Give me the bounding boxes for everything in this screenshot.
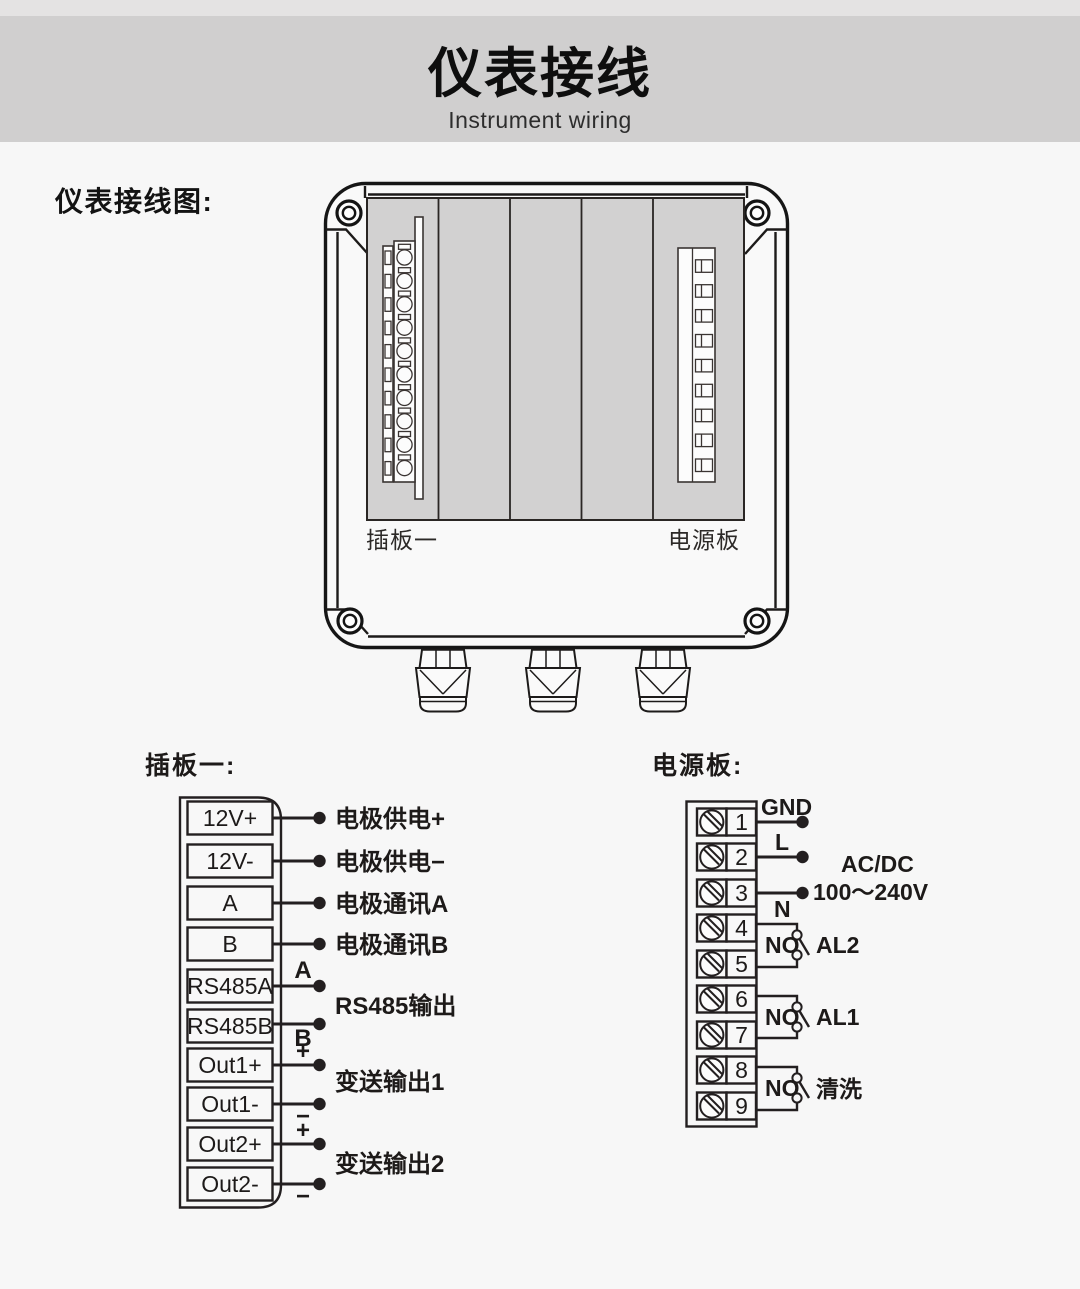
junction-dot [313,855,325,867]
corner-screw-icon [337,201,361,225]
relay-contact-al1: NO AL1 [756,996,860,1038]
wiring-diagram: 插板一 电源板 插板一: [0,0,1080,1289]
device-left-board-label: 插板一 [366,527,438,553]
junction-dot [313,812,325,824]
terminal-label: RS485A [187,973,273,999]
svg-text:4: 4 [735,915,748,941]
power-terminal-row: 1 [697,809,756,836]
power-terminal-row: 4 [697,915,756,942]
terminal-label: A [222,890,238,916]
relay-contact-al2: NO AL2 [756,924,859,967]
wire-label: 电极通讯B [335,932,448,959]
power-terminal-row: 7 [697,1022,756,1049]
corner-screw-icon [745,201,769,225]
corner-screw-icon [745,609,769,633]
board2-heading: 电源板: [652,752,743,780]
power-terminal-row: 5 [697,951,756,978]
minus-mark: − [296,1183,310,1210]
relay-contact-clean: NO 清洗 [756,1067,862,1110]
svg-text:1: 1 [735,809,748,835]
cable-gland-icon [416,650,470,712]
svg-text:3: 3 [735,880,748,906]
junction-dot [313,938,325,950]
board2-section: 电源板: 1 2 3 4 5 6 7 [652,752,929,1127]
terminal-label: Out1+ [198,1052,261,1078]
junction-dot [313,1098,325,1110]
terminal-label: Out2+ [198,1131,261,1157]
no-label: NO [765,932,800,958]
relay-label: AL1 [816,1004,860,1030]
plus-mark: + [296,1038,310,1065]
board1-heading: 插板一: [145,752,236,780]
no-label: NO [765,1075,800,1101]
junction-dot [313,897,325,909]
junction-dot [796,851,808,863]
wire-label: 变送输出1 [335,1068,444,1096]
svg-text:8: 8 [735,1057,748,1083]
board1-section: 插板一: 12V+ 12V- A B RS485A RS485B Out1+ O… [145,752,456,1210]
terminal-label: Out1- [201,1091,259,1117]
neutral-label: N [774,896,791,922]
power-terminal-row: 6 [697,986,756,1013]
power-terminal-row: 9 [697,1093,756,1120]
terminal-label: B [222,931,237,957]
terminal-label: 12V- [206,848,253,874]
junction-dot [313,1178,325,1190]
plus-mark: + [296,1117,310,1144]
corner-screw-icon [338,609,362,633]
page: 仪表接线 Instrument wiring 仪表接线图: [0,0,1080,1289]
junction-dot [313,1059,325,1071]
terminal-label: Out2- [201,1171,259,1197]
svg-text:7: 7 [735,1022,748,1048]
terminal-contacts [696,260,713,472]
junction-dot [313,980,325,992]
junction-dot [313,1138,325,1150]
wire-label: 变送输出2 [335,1150,444,1178]
svg-text:9: 9 [735,1093,748,1119]
power-terminal-row: 2 [697,844,756,871]
svg-text:2: 2 [735,844,748,870]
device-right-board-label: 电源板 [668,527,740,553]
voltage-label: 100～240V [813,879,929,905]
device-right-terminal-strip [678,248,715,482]
no-label: NO [765,1004,800,1030]
device-enclosure: 插板一 电源板 [326,184,788,712]
wire-label: 电极供电− [335,849,445,876]
cable-gland-icon [526,650,580,712]
live-label: L [775,829,789,855]
cable-gland-icon [636,650,690,712]
terminal-label: RS485B [187,1013,273,1039]
relay-label: 清洗 [816,1076,862,1102]
junction-dot [313,1018,325,1030]
device-left-terminal-strip [383,217,423,499]
wire-label: 电极通讯A [335,891,448,918]
wire-label: RS485输出 [335,992,456,1020]
acdc-label: AC/DC [841,851,914,877]
rs485-a-mark: A [294,957,311,984]
relay-label: AL2 [816,932,859,958]
svg-text:6: 6 [735,986,748,1012]
power-terminal-row: 3 [697,880,756,907]
wire-label: 电极供电+ [335,806,445,833]
power-terminal-row: 8 [697,1057,756,1084]
terminal-label: 12V+ [203,805,257,831]
junction-dot [796,887,808,899]
gnd-label: GND [761,794,812,820]
svg-text:5: 5 [735,951,748,977]
